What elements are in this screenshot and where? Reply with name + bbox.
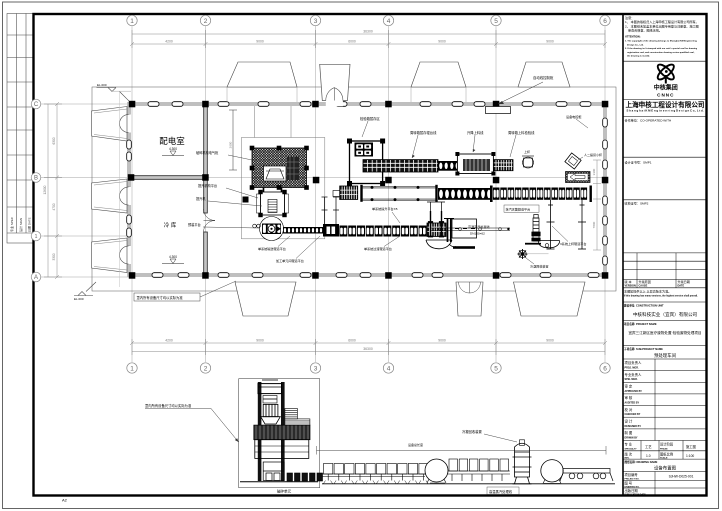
svg-text:提升机构平台: 提升机构平台 — [198, 183, 217, 188]
svg-text:5: 5 — [494, 365, 498, 372]
svg-text:设备布置图: 设备布置图 — [654, 465, 677, 472]
svg-text:EL.000: EL.000 — [74, 297, 84, 301]
svg-text:检验箱暂存区: 检验箱暂存区 — [360, 116, 380, 121]
svg-text:设计证书号：SMP1: 设计证书号：SMP1 — [625, 160, 652, 165]
svg-text:9000: 9000 — [438, 40, 446, 44]
svg-text:蒸汽灭菌辊道平台: 蒸汽灭菌辊道平台 — [506, 207, 531, 212]
svg-text:升版日期: 升版日期 — [678, 279, 690, 284]
svg-text:4: 4 — [387, 18, 391, 25]
svg-text:9000: 9000 — [438, 339, 446, 343]
svg-text:DRAWN BY: DRAWN BY — [625, 437, 638, 440]
svg-text:设计阶段: 设计阶段 — [660, 442, 674, 447]
svg-text:9000: 9000 — [256, 339, 264, 343]
svg-text:合作单位：CO-OPERATED WITH: 合作单位：CO-OPERATED WITH — [625, 118, 672, 123]
svg-text:周转箱暂存辊台线: 周转箱暂存辊台线 — [410, 130, 437, 135]
svg-text:4200: 4200 — [165, 40, 173, 44]
svg-text:9000: 9000 — [546, 40, 554, 44]
svg-text:PROJ. MGR.: PROJ. MGR. — [625, 367, 639, 370]
svg-text:宜宾三江新区医疗废物处置·检验废物处理项目: 宜宾三江新区医疗废物处置·检验废物处理项目 — [628, 330, 701, 335]
svg-text:SJHW-D025-001: SJHW-D025-001 — [669, 475, 694, 479]
svg-text:配电室: 配电室 — [159, 136, 185, 146]
svg-text:DN100×62: DN100×62 — [470, 232, 485, 236]
svg-text:罩内所有设备尺寸均以实际为准: 罩内所有设备尺寸均以实际为准 — [137, 295, 184, 300]
svg-text:收费证号：SMP2: 收费证号：SMP2 — [625, 201, 649, 206]
svg-text:Design Co., Ltd.: Design Co., Ltd. — [627, 43, 644, 46]
svg-text:审查合格章、图纸无效。: 审查合格章、图纸无效。 — [628, 28, 662, 33]
svg-text:36300: 36300 — [363, 347, 373, 351]
svg-text:中核科技实业（宜宾）有限公司: 中核科技实业（宜宾）有限公司 — [633, 311, 698, 318]
svg-text:DESIGNED BY: DESIGNED BY — [625, 425, 642, 428]
svg-text:审 定: 审 定 — [625, 384, 633, 389]
svg-text:A: A — [34, 275, 38, 281]
svg-text:项目编号: 项目编号 — [625, 472, 639, 477]
svg-text:SPEL MGR.: SPEL MGR. — [625, 378, 638, 381]
svg-text:设备电控柜: 设备电控柜 — [566, 114, 581, 119]
svg-text:项目名称: PROJECT NAME: 项目名称: PROJECT NAME — [623, 322, 657, 326]
svg-text:图 号: 图 号 — [625, 481, 633, 486]
svg-text:36300: 36300 — [363, 30, 373, 34]
svg-text:自动线控制柜: 自动线控制柜 — [533, 75, 554, 80]
svg-text:1: 1 — [130, 18, 134, 25]
svg-text:设备总长度: 设备总长度 — [408, 442, 423, 447]
svg-text:1:100: 1:100 — [686, 454, 694, 458]
svg-text:EL.000: EL.000 — [97, 83, 107, 87]
svg-text:制 图: 制 图 — [625, 430, 633, 435]
svg-text:6: 6 — [603, 18, 607, 25]
svg-text:审 核: 审 核 — [625, 395, 633, 400]
svg-text:B: B — [34, 176, 38, 182]
svg-text:registration seal, and constru: registration seal, and construction draw… — [627, 51, 695, 54]
svg-text:升降上料线: 升降上料线 — [467, 130, 484, 135]
svg-text:A2: A2 — [62, 498, 68, 503]
svg-text:2: 2 — [204, 365, 208, 372]
svg-text:6: 6 — [603, 365, 607, 372]
svg-text:REV.: REV. — [625, 458, 630, 460]
svg-text:VERSION: VERSION — [625, 285, 636, 288]
svg-text:版 本: 版 本 — [625, 279, 632, 284]
svg-text:单系统输送辊道平台: 单系统输送辊道平台 — [258, 246, 286, 251]
svg-text:7800: 7800 — [592, 221, 596, 228]
svg-text:3300: 3300 — [52, 253, 56, 260]
svg-text:子项名称: SUB-PROJECT NAME: 子项名称: SUB-PROJECT NAME — [624, 347, 663, 351]
svg-text:DATE: DATE — [678, 285, 685, 288]
svg-text:If this drawing has many versi: If this drawing has many versions, the h… — [624, 294, 698, 297]
svg-text:AUDITED BY: AUDITED BY — [625, 402, 640, 405]
svg-text:预处理车间: 预处理车间 — [654, 352, 676, 359]
svg-text:3系统上杯辊道平台: 3系统上杯辊道平台 — [560, 241, 586, 246]
svg-text:专业负责人: 专业负责人 — [625, 372, 643, 377]
svg-text:单系统过渡辊道平台: 单系统过渡辊道平台 — [364, 246, 392, 251]
svg-text:中核集团: 中核集团 — [654, 84, 678, 92]
svg-text:设 计: 设 计 — [625, 418, 633, 423]
svg-text:4.300: 4.300 — [169, 255, 177, 259]
svg-text:图纸名称: DRAWING NAME: 图纸名称: DRAWING NAME — [625, 460, 658, 464]
svg-text:高温蒸汽处理线: 高温蒸汽处理线 — [489, 489, 513, 494]
svg-text:6000: 6000 — [348, 40, 356, 44]
svg-text:冷 库: 冷 库 — [164, 221, 177, 229]
svg-text:PUBLICATION DATE: PUBLICATION DATE — [625, 493, 647, 496]
svg-text:3: 3 — [314, 365, 318, 372]
svg-text:冷凝回收装置: 冷凝回收装置 — [462, 429, 482, 434]
svg-text:单系统提升平台X5: 单系统提升平台X5 — [372, 206, 398, 211]
svg-text:破碎机构电气柜: 破碎机构电气柜 — [196, 150, 219, 155]
svg-text:上杯: 上杯 — [524, 149, 530, 154]
svg-text:校 对: 校 对 — [625, 407, 633, 412]
svg-text:the drawing is invalid.: the drawing is invalid. — [627, 55, 650, 58]
svg-text:12600: 12600 — [43, 185, 47, 194]
svg-text:2600: 2600 — [229, 141, 233, 148]
svg-text:4700: 4700 — [52, 203, 56, 210]
svg-text:设计 SIGN: 设计 SIGN — [18, 218, 23, 232]
svg-text:PHASE: PHASE — [660, 448, 668, 451]
svg-text:周转箱上料检验线: 周转箱上料检验线 — [508, 130, 535, 135]
svg-text:提升机: 提升机 — [196, 196, 206, 201]
svg-text:图纸比例: 图纸比例 — [660, 452, 674, 457]
svg-text:3300: 3300 — [592, 168, 596, 175]
svg-text:5: 5 — [494, 18, 498, 25]
svg-text:CHECKED BY: CHECKED BY — [625, 413, 641, 416]
svg-text:4.300: 4.300 — [169, 147, 177, 151]
svg-text:本图如提供以上,以最高版本为准。: 本图如提供以上,以最高版本为准。 — [624, 289, 671, 294]
svg-text:6300: 6300 — [52, 137, 56, 144]
svg-text:S h a n g h a i K M E n g: S h a n g h a i K M E n g i n e e r i n … — [627, 108, 704, 112]
svg-text:PROJECT NO.: PROJECT NO. — [625, 479, 640, 481]
svg-text:APPROVED BY: APPROVED BY — [625, 390, 643, 393]
svg-text:SCALE: SCALE — [660, 457, 668, 460]
svg-text:1: 1 — [35, 234, 38, 240]
svg-text:9000: 9000 — [546, 339, 554, 343]
svg-text:高温蒸汽处置线: 高温蒸汽处置线 — [468, 224, 490, 229]
svg-text:工艺: 工艺 — [645, 444, 652, 449]
svg-text:建设单位: CONSTRUCTION UNIT: 建设单位: CONSTRUCTION UNIT — [624, 304, 664, 308]
svg-text:2. If the drawing isn't stampe: 2. If the drawing isn't stamped with our… — [625, 47, 698, 50]
svg-text:2: 2 — [204, 18, 208, 25]
svg-text:人二提货小杯: 人二提货小杯 — [584, 152, 602, 157]
svg-text:4: 4 — [387, 365, 391, 372]
svg-text:4200: 4200 — [165, 339, 173, 343]
svg-text:专业 SPEC: 专业 SPEC — [9, 216, 14, 232]
svg-text:上海申核工程设计有限公司: 上海申核工程设计有限公司 — [626, 100, 705, 109]
svg-text:升版原因: 升版原因 — [639, 279, 651, 284]
svg-text:罩内所有设备尺寸均以实际为准: 罩内所有设备尺寸均以实际为准 — [145, 403, 192, 408]
svg-text:ATTENTION:: ATTENTION: — [625, 35, 641, 39]
svg-text:出版日期: 出版日期 — [625, 488, 639, 493]
svg-text:预装平台: 预装平台 — [188, 222, 201, 227]
svg-text:1: 1 — [130, 365, 134, 372]
svg-text:3: 3 — [314, 18, 318, 25]
svg-text:9000: 9000 — [256, 40, 264, 44]
svg-text:CNNC: CNNC — [657, 93, 674, 98]
svg-text:施工图: 施工图 — [686, 444, 697, 449]
svg-text:加工单元间辊道平台: 加工单元间辊道平台 — [276, 258, 304, 263]
svg-text:6000: 6000 — [348, 339, 356, 343]
svg-text:日期 DATE: 日期 DATE — [27, 217, 32, 232]
svg-text:1. The copyright of the drawin: 1. The copyright of the drawing belongs … — [625, 40, 697, 43]
svg-text:CAUSE: CAUSE — [639, 285, 648, 288]
svg-text:破碎单元: 破碎单元 — [277, 489, 292, 494]
svg-text:冷凝回收装置: 冷凝回收装置 — [530, 264, 549, 269]
svg-text:C: C — [34, 102, 39, 108]
svg-text:专 业: 专 业 — [625, 442, 633, 447]
svg-text:版 次: 版 次 — [625, 452, 633, 457]
svg-text:1.0: 1.0 — [646, 454, 651, 458]
svg-text:SPECIALTY: SPECIALTY — [625, 448, 638, 451]
svg-text:项目负责人: 项目负责人 — [625, 360, 643, 365]
